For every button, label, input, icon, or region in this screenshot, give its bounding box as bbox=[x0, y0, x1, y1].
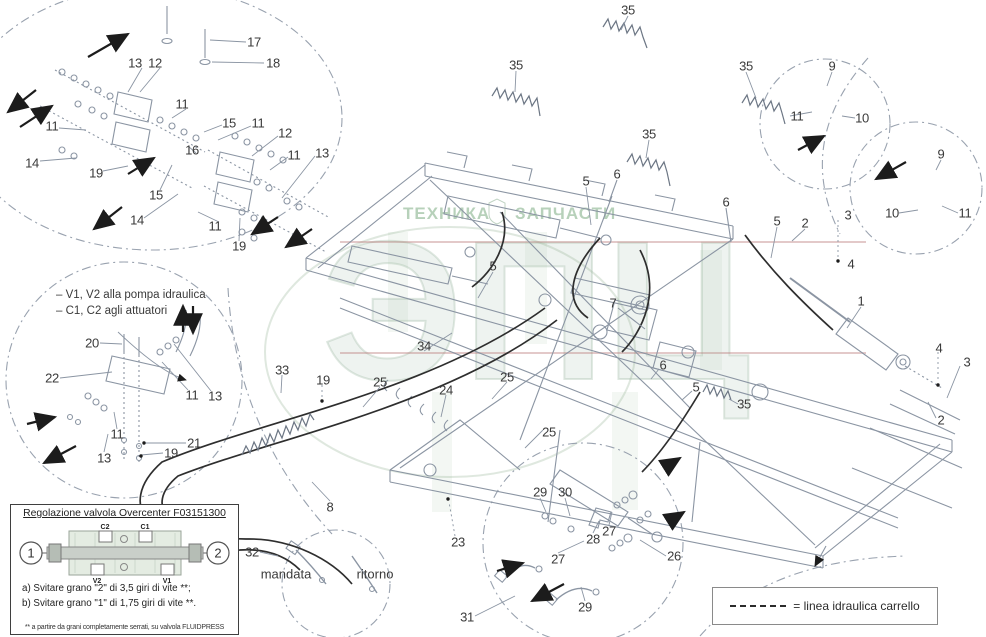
overcenter-adjustment-box: Regolazione valvola Overcenter F03151300… bbox=[10, 504, 239, 635]
dashed-line-sample bbox=[730, 605, 786, 607]
port-label-c2: C2 bbox=[101, 524, 110, 531]
callout-label: 9 bbox=[829, 60, 836, 73]
callout-label: 25 bbox=[500, 371, 514, 384]
note-line-1: – V1, V2 alla pompa idraulica bbox=[56, 288, 206, 304]
callout-label: 13 bbox=[97, 452, 111, 465]
callout-label: 11 bbox=[288, 149, 301, 162]
overcenter-valve-drawing: 1 2 C2 C1 V2 V1 bbox=[11, 522, 238, 584]
callout-label: 4 bbox=[848, 258, 855, 271]
callout-label: 15 bbox=[222, 117, 236, 130]
callout-label: 26 bbox=[667, 550, 681, 563]
callout-label: 8 bbox=[327, 501, 334, 514]
callout-label: 13 bbox=[128, 57, 142, 70]
callout-label: 5 bbox=[693, 381, 700, 394]
callout-label: 12 bbox=[148, 57, 162, 70]
supply-label: mandata bbox=[261, 567, 312, 582]
parts-diagram-page: ТЕХНИКА ЗАПЧАСТИ ЭПЦ bbox=[0, 0, 986, 637]
callout-label: 9 bbox=[938, 148, 945, 161]
balloon-2: 2 bbox=[214, 546, 221, 561]
callout-label: 29 bbox=[533, 486, 547, 499]
callout-label: 2 bbox=[802, 217, 809, 230]
callout-label: 19 bbox=[164, 447, 178, 460]
callout-label: 10 bbox=[855, 112, 869, 125]
callout-label: 34 bbox=[417, 340, 431, 353]
callout-label: 11 bbox=[176, 98, 189, 111]
callout-label: 5 bbox=[490, 260, 497, 273]
callout-label: 13 bbox=[315, 147, 329, 160]
note-line-2: – C1, C2 agli attuatori bbox=[56, 304, 206, 320]
callout-label: 19 bbox=[232, 240, 246, 253]
callout-label: 33 bbox=[275, 364, 289, 377]
callout-label: 14 bbox=[130, 214, 144, 227]
callout-label: 19 bbox=[316, 374, 330, 387]
callout-label: 11 bbox=[791, 110, 804, 123]
callout-label: 23 bbox=[451, 536, 465, 549]
overcenter-title: Regolazione valvola Overcenter F03151300 bbox=[11, 508, 238, 519]
callout-label: 22 bbox=[45, 372, 59, 385]
callout-label: 19 bbox=[89, 167, 103, 180]
legend-box: = linea idraulica carrello bbox=[712, 587, 938, 625]
callout-label: 11 bbox=[111, 428, 124, 441]
legend-label: = linea idraulica carrello bbox=[793, 599, 919, 613]
callout-label: 11 bbox=[46, 120, 59, 133]
callout-label: 6 bbox=[660, 359, 667, 372]
overcenter-footnote: ** a partire da grani completamente serr… bbox=[11, 624, 238, 631]
callout-label: 32 bbox=[245, 546, 259, 559]
callout-label: 35 bbox=[621, 4, 635, 17]
overcenter-step-b: b) Svitare grano "1" di 1,75 giri di vit… bbox=[22, 598, 196, 609]
callout-label: 4 bbox=[936, 342, 943, 355]
callout-label: 31 bbox=[460, 611, 474, 624]
callout-label: 29 bbox=[578, 601, 592, 614]
callout-label: 11 bbox=[252, 117, 265, 130]
return-label: ritorno bbox=[357, 567, 394, 582]
callout-label: 5 bbox=[774, 215, 781, 228]
callout-label: 21 bbox=[187, 437, 201, 450]
callout-label: 6 bbox=[614, 168, 621, 181]
callout-label: 16 bbox=[185, 144, 199, 157]
callout-label: 35 bbox=[642, 128, 656, 141]
callout-label: 35 bbox=[509, 59, 523, 72]
port-label-c1: C1 bbox=[141, 524, 150, 531]
callout-label: 3 bbox=[845, 209, 852, 222]
callout-label: 18 bbox=[266, 57, 280, 70]
callout-label: 7 bbox=[610, 297, 617, 310]
callout-label: 1 bbox=[858, 295, 865, 308]
callout-label: 11 bbox=[959, 207, 972, 220]
callout-label: 25 bbox=[373, 376, 387, 389]
callout-label: 6 bbox=[723, 196, 730, 209]
callout-label: 24 bbox=[439, 384, 453, 397]
pump-actuator-notes: – V1, V2 alla pompa idraulica – C1, C2 a… bbox=[56, 288, 206, 319]
callout-label: 28 bbox=[586, 533, 600, 546]
callout-label: 14 bbox=[25, 157, 39, 170]
callout-label: 20 bbox=[85, 337, 99, 350]
callout-label: 30 bbox=[558, 486, 572, 499]
callout-label: 13 bbox=[208, 390, 222, 403]
callout-label: 27 bbox=[551, 553, 565, 566]
callout-label: 35 bbox=[739, 60, 753, 73]
callout-label: 12 bbox=[278, 127, 292, 140]
callout-label: 15 bbox=[149, 189, 163, 202]
callout-label: 3 bbox=[964, 356, 971, 369]
callout-label: 11 bbox=[186, 389, 199, 402]
callout-label: 27 bbox=[602, 525, 616, 538]
callout-label: 10 bbox=[885, 207, 899, 220]
overcenter-step-a: a) Svitare grano "2" di 3,5 giri di vite… bbox=[22, 583, 191, 594]
callout-label: 17 bbox=[247, 36, 261, 49]
callout-label: 5 bbox=[583, 175, 590, 188]
callout-label: 11 bbox=[209, 220, 222, 233]
balloon-1: 1 bbox=[27, 546, 34, 561]
callout-label: 2 bbox=[938, 414, 945, 427]
callout-label: 25 bbox=[542, 426, 556, 439]
callout-label: 35 bbox=[737, 398, 751, 411]
